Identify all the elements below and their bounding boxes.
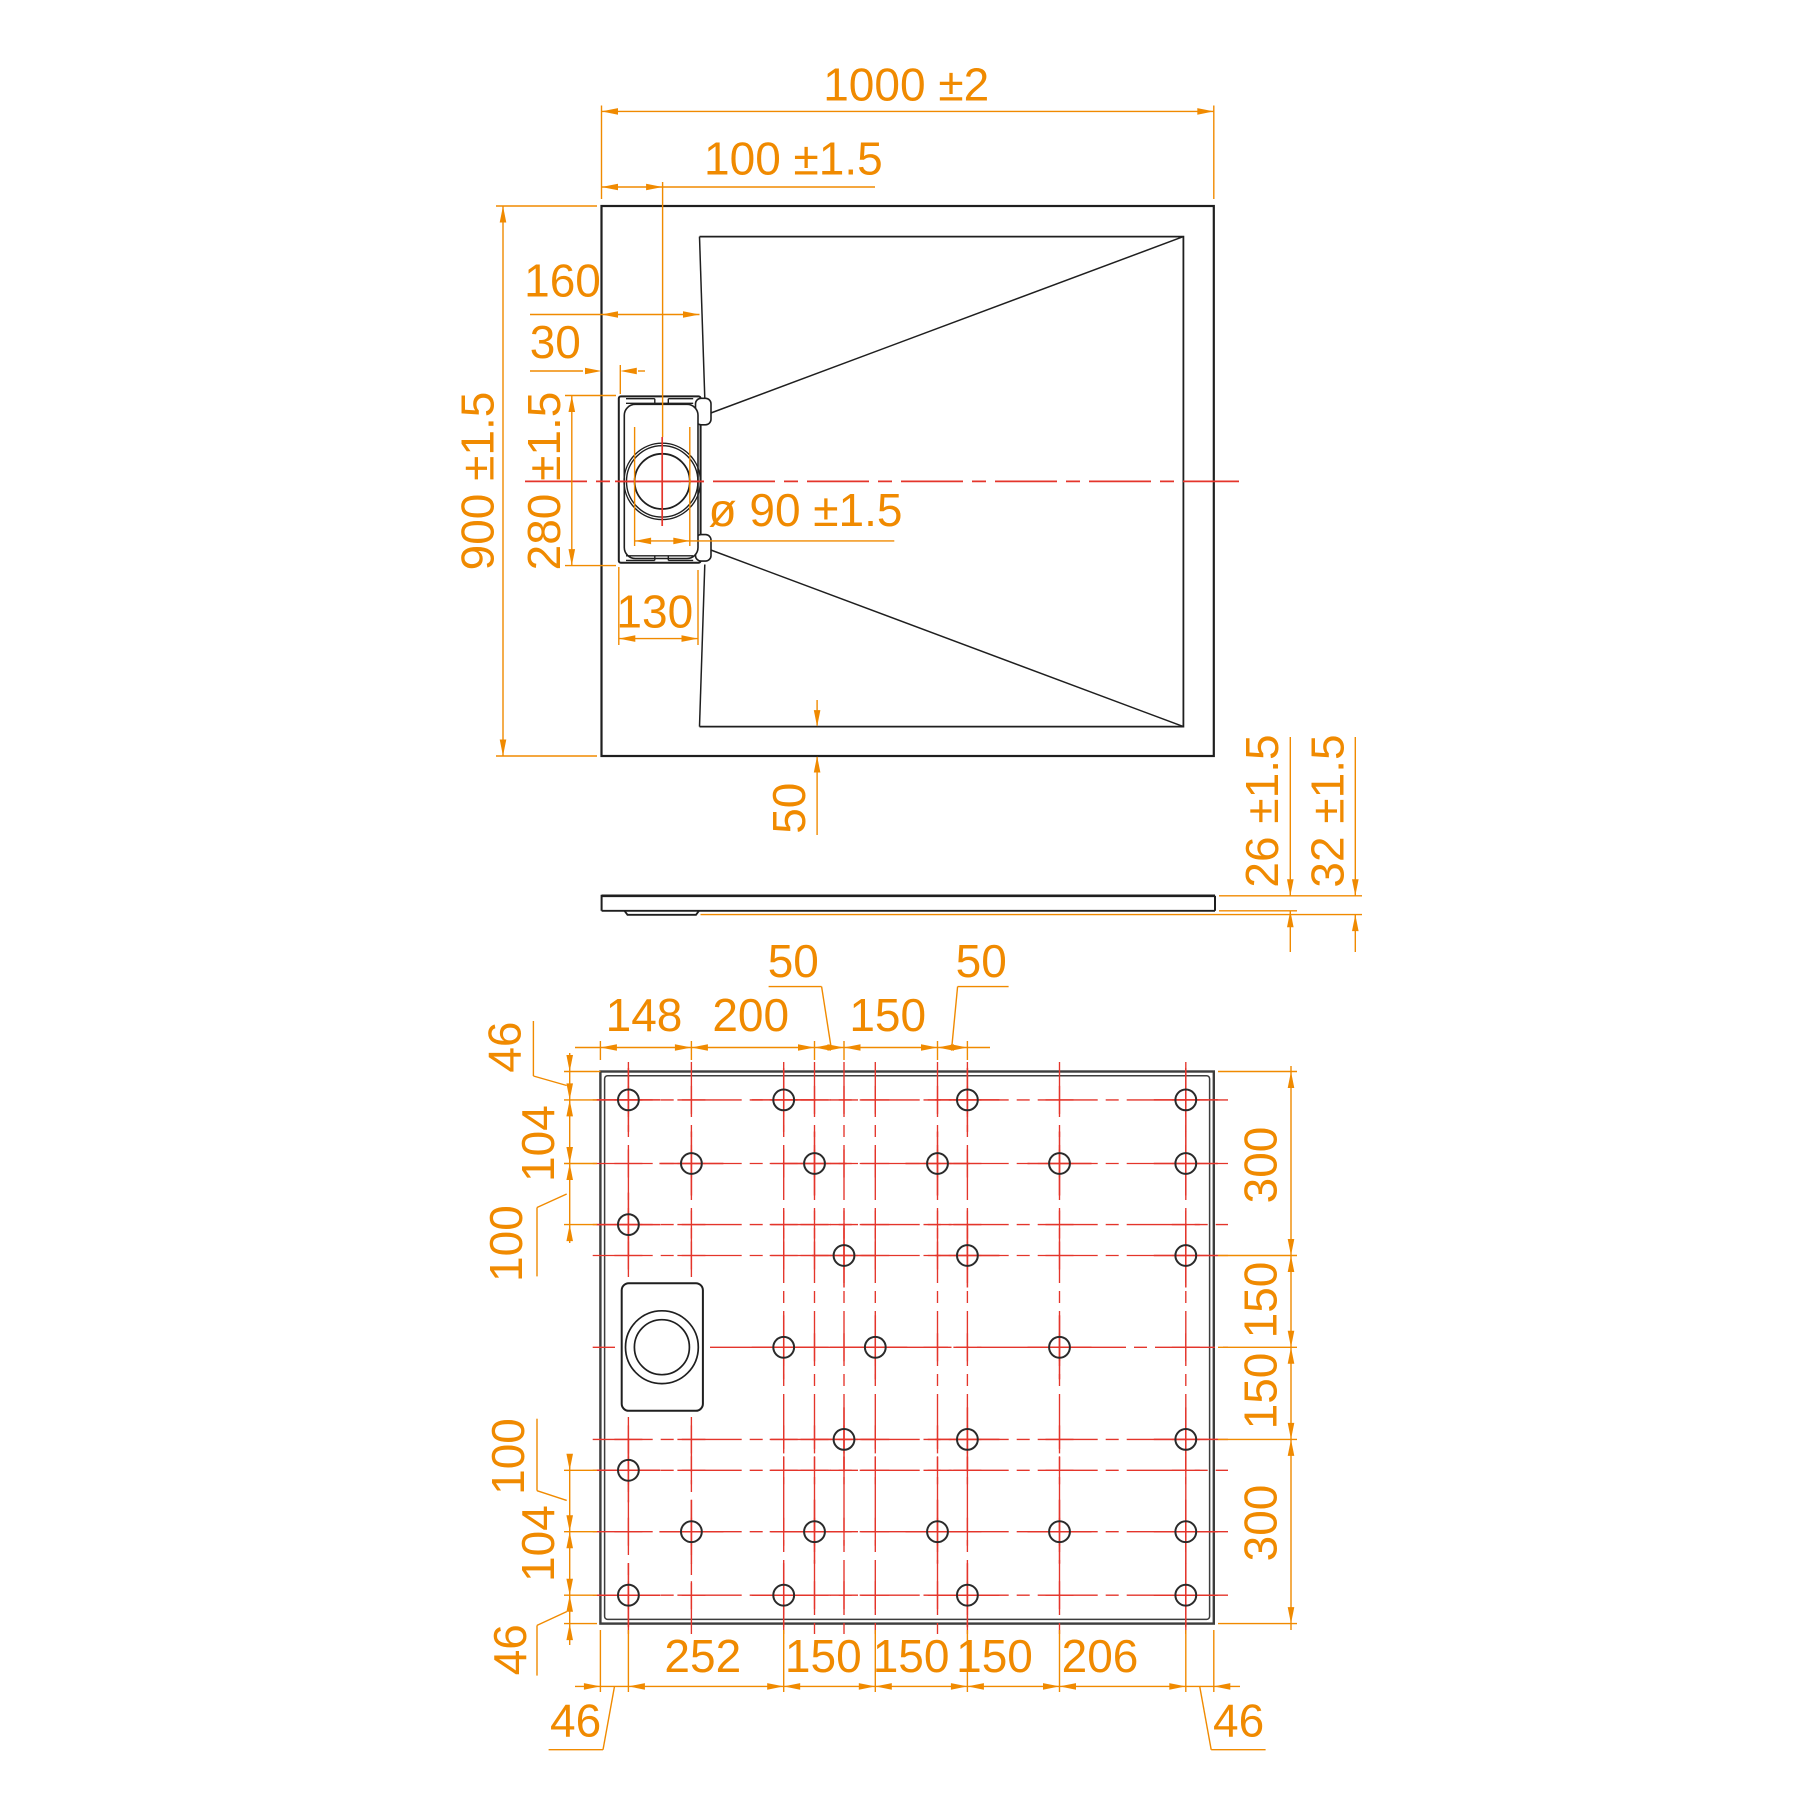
svg-text:280 ±1.5: 280 ±1.5	[518, 392, 570, 571]
svg-text:30: 30	[530, 316, 581, 368]
svg-text:26 ±1.5: 26 ±1.5	[1236, 734, 1288, 887]
svg-text:104: 104	[512, 1505, 564, 1582]
svg-text:46: 46	[478, 1022, 530, 1073]
svg-text:148: 148	[606, 989, 683, 1041]
svg-text:50: 50	[763, 783, 815, 834]
svg-text:100 ±1.5: 100 ±1.5	[704, 133, 883, 185]
svg-text:46: 46	[484, 1624, 536, 1675]
svg-text:200: 200	[712, 989, 789, 1041]
svg-text:50: 50	[956, 935, 1007, 987]
svg-text:46: 46	[550, 1695, 601, 1747]
svg-text:104: 104	[512, 1105, 564, 1182]
svg-text:32 ±1.5: 32 ±1.5	[1301, 734, 1353, 887]
svg-text:300: 300	[1235, 1485, 1287, 1562]
svg-text:900 ±1.5: 900 ±1.5	[452, 392, 504, 571]
svg-text:ø 90 ±1.5: ø 90 ±1.5	[708, 484, 902, 536]
svg-text:150: 150	[1235, 1262, 1287, 1339]
svg-text:150: 150	[849, 989, 926, 1041]
svg-text:300: 300	[1235, 1127, 1287, 1204]
svg-text:150: 150	[1235, 1353, 1287, 1430]
svg-text:150: 150	[873, 1630, 950, 1682]
svg-text:100: 100	[480, 1205, 532, 1282]
svg-text:1000 ±2: 1000 ±2	[823, 59, 989, 111]
svg-text:46: 46	[1213, 1695, 1264, 1747]
svg-text:100: 100	[482, 1418, 534, 1495]
svg-text:50: 50	[768, 935, 819, 987]
svg-text:150: 150	[956, 1630, 1033, 1682]
svg-text:252: 252	[664, 1630, 741, 1682]
svg-text:130: 130	[616, 585, 693, 637]
svg-text:160: 160	[524, 255, 601, 307]
svg-text:150: 150	[785, 1630, 862, 1682]
svg-text:206: 206	[1062, 1630, 1139, 1682]
